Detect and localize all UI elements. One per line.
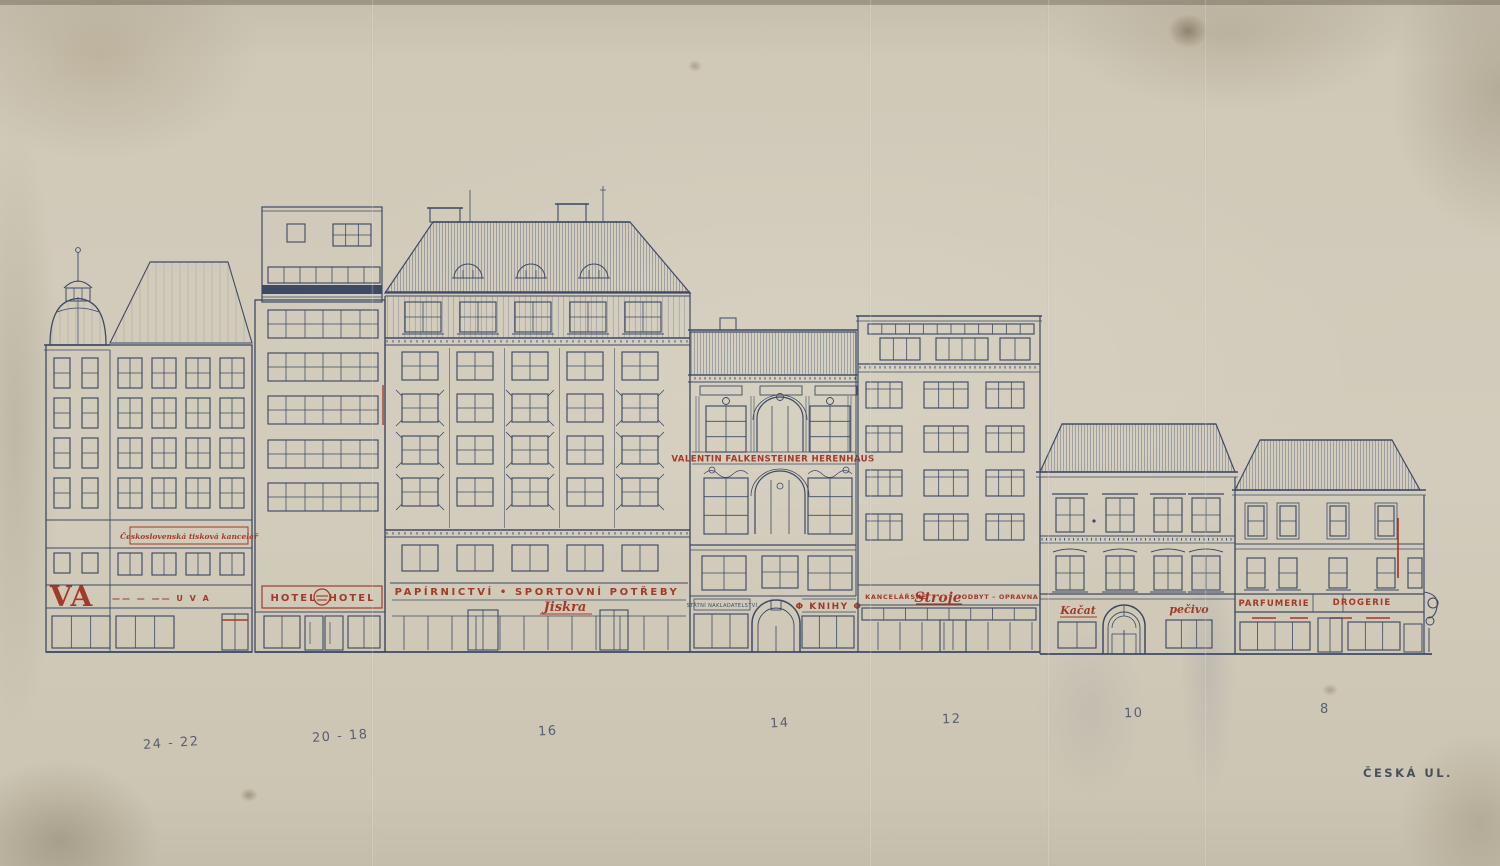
kacat-sign: Kačat — [1059, 604, 1096, 617]
building-number-14: 14 — [770, 715, 790, 731]
building-number-10: 10 — [1124, 706, 1144, 722]
odbyt-opravna-sign: ODBYT – OPRAVNA — [962, 593, 1039, 601]
valentin-band-sign: VALENTIN FALKENSTEINER HERENHAUS — [671, 455, 874, 465]
building-number-12: 12 — [942, 712, 962, 728]
hotel-sign-left: HOTEL — [271, 593, 318, 604]
drogerie-sign: DROGERIE — [1333, 598, 1392, 608]
building-number-16: 16 — [538, 723, 558, 739]
shop-sign-va-sub: —— — —— U V A — [112, 594, 211, 603]
jiskra-sign: Jiskra — [541, 600, 587, 615]
street-name-label: ČESKÁ UL. — [1363, 766, 1453, 780]
parfumerie-sign: PARFUMERIE — [1238, 599, 1309, 609]
street-elevation-drawing: Československá tisková kancelářVA—— — ——… — [0, 0, 1500, 866]
building-number-8: 8 — [1320, 702, 1330, 717]
statni-nakladatelstvi-sign: STÁTNÍ NAKLADATELSTVÍ — [687, 602, 758, 609]
papirnictvi-sign: PAPÍRNICTVÍ • SPORTOVNÍ POTŘEBY — [395, 585, 680, 598]
knihy-sign: Φ KNIHY Φ — [796, 602, 863, 612]
hotel-sign-right: HOTEL — [329, 593, 376, 604]
kancelarske-sign: KANCELÁŘSKÉ — [865, 592, 927, 601]
shop-sign-kancelar: Československá tisková kancelář — [120, 532, 259, 541]
blueprint-paper: Československá tisková kancelářVA—— — ——… — [0, 0, 1500, 866]
pecivo-sign: pečivo — [1169, 603, 1208, 616]
